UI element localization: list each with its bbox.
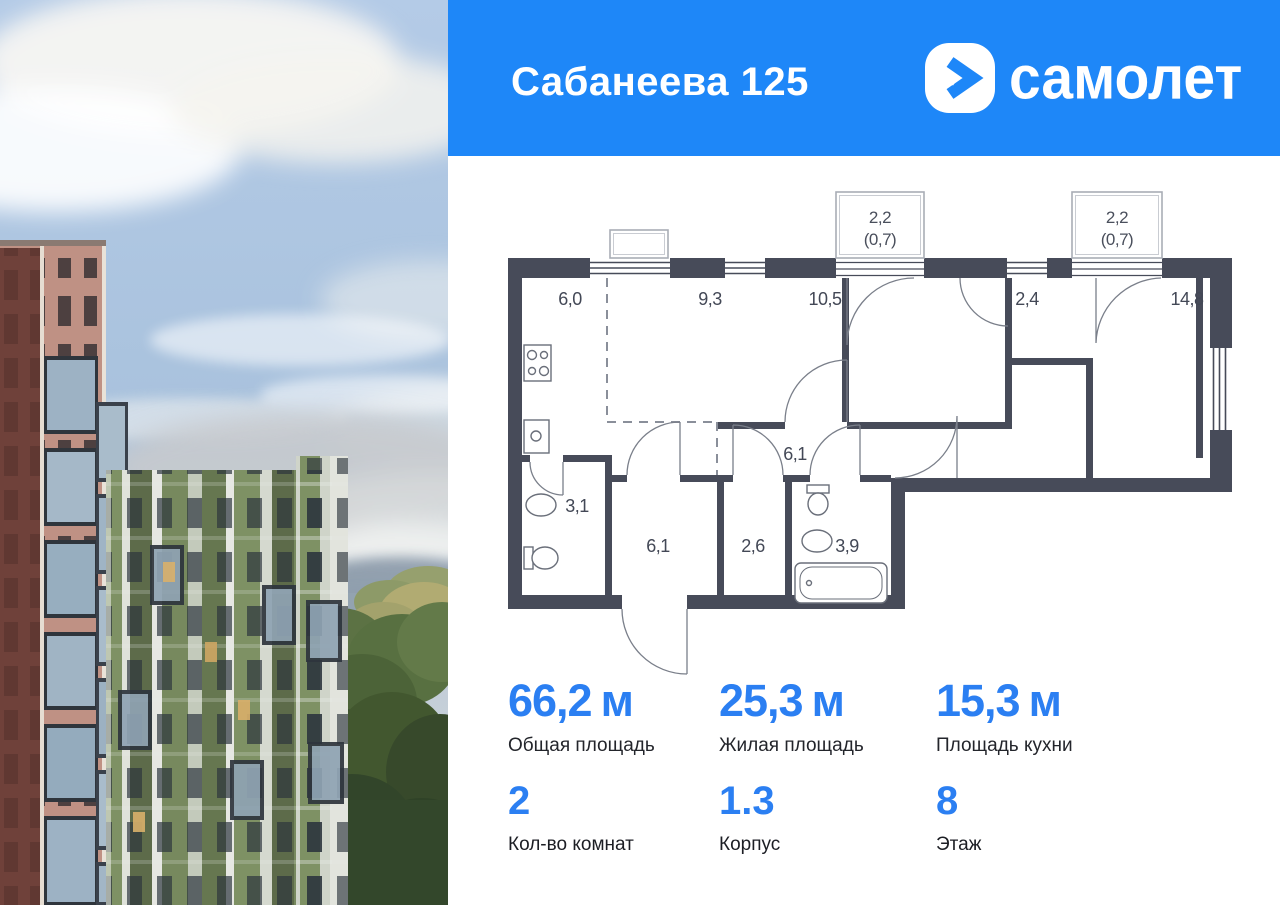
room-label: 14,8: [1170, 289, 1204, 309]
stat-living-area: 25,3м Жилая площадь: [719, 678, 864, 755]
project-photo: [0, 0, 448, 905]
stat-building: 1.3 Корпус: [719, 781, 780, 854]
info-panel: Сабанеева 125 самолет: [448, 0, 1280, 905]
stat-value: 25,3: [719, 675, 803, 726]
stat-value: 1.3: [719, 781, 780, 821]
room-label: 2,4: [1015, 289, 1039, 309]
balcony-reduced-area: (0,7): [1101, 230, 1133, 249]
samolet-arrow-icon: [925, 43, 995, 113]
stat-label: Общая площадь: [508, 736, 655, 755]
windows: [590, 263, 1226, 431]
fixtures: [524, 345, 887, 603]
room-label: 6,0: [558, 289, 582, 309]
room-label: 3,1: [565, 496, 589, 516]
green-building: [106, 456, 348, 905]
room-labels: 6,0 9,3 10,5 2,4 14,8 6,1 3,1 6,1 2,6 3,…: [558, 208, 1204, 556]
stat-value: 15,3: [936, 675, 1020, 726]
stat-label: Кол-во комнат: [508, 835, 634, 854]
brand-logo: самолет: [925, 43, 1242, 113]
stat-kitchen-area: 15,3м Площадь кухни: [936, 678, 1073, 755]
stat-floor: 8 Этаж: [936, 781, 981, 854]
room-label: 10,5: [808, 289, 842, 309]
stat-unit: м: [1029, 675, 1061, 726]
stat-unit: м: [601, 675, 633, 726]
room-label: 6,1: [646, 536, 670, 556]
balcony-reduced-area: (0,7): [864, 230, 896, 249]
floor-plan: 6,0 9,3 10,5 2,4 14,8 6,1 3,1 6,1 2,6 3,…: [495, 175, 1240, 675]
balcony-area: 2,2: [1106, 208, 1128, 227]
stat-rooms-count: 2 Кол-во комнат: [508, 781, 634, 854]
room-label: 3,9: [835, 536, 859, 556]
listing-card: Сабанеева 125 самолет: [0, 0, 1280, 905]
room-label: 9,3: [698, 289, 722, 309]
stat-value: 8: [936, 781, 981, 821]
room-label: 6,1: [783, 444, 807, 464]
stat-label: Площадь кухни: [936, 736, 1073, 755]
stat-unit: м: [812, 675, 844, 726]
project-title: Сабанеева 125: [511, 60, 809, 105]
brand-name: самолет: [1009, 40, 1242, 116]
stat-label: Жилая площадь: [719, 736, 864, 755]
balcony-area: 2,2: [869, 208, 891, 227]
stat-total-area: 66,2м Общая площадь: [508, 678, 655, 755]
header: Сабанеева 125 самолет: [448, 0, 1280, 156]
stat-value: 2: [508, 781, 634, 821]
walls: [508, 258, 1232, 609]
stat-label: Корпус: [719, 835, 780, 854]
stat-value: 66,2: [508, 675, 592, 726]
stat-label: Этаж: [936, 835, 981, 854]
room-label: 2,6: [741, 536, 765, 556]
